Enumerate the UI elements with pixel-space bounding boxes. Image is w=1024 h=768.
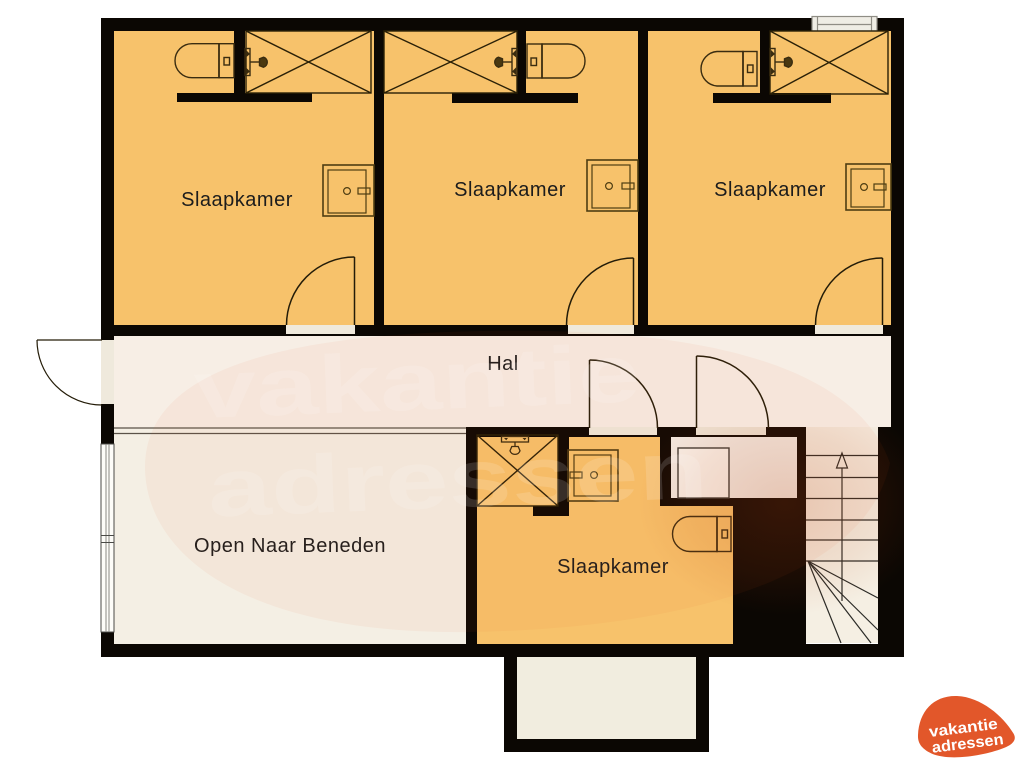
- svg-text:Slaapkamer: Slaapkamer: [181, 189, 293, 211]
- svg-text:Slaapkamer: Slaapkamer: [714, 179, 826, 201]
- svg-text:adressen: adressen: [206, 425, 709, 535]
- svg-text:Slaapkamer: Slaapkamer: [454, 179, 566, 201]
- svg-text:vakantie: vakantie: [192, 328, 641, 436]
